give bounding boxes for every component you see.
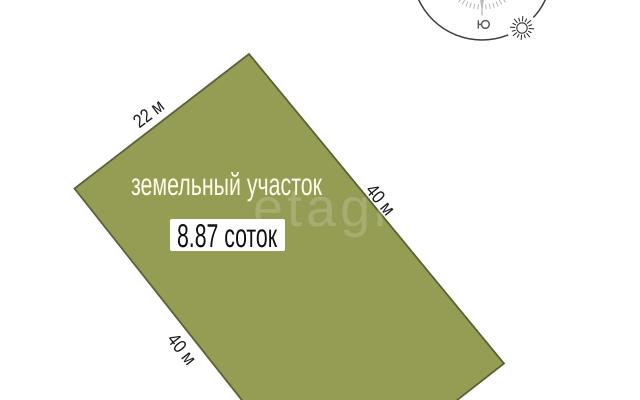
svg-text:земельный участок: земельный участок	[131, 167, 322, 202]
svg-text:8.87 соток: 8.87 соток	[177, 217, 277, 254]
